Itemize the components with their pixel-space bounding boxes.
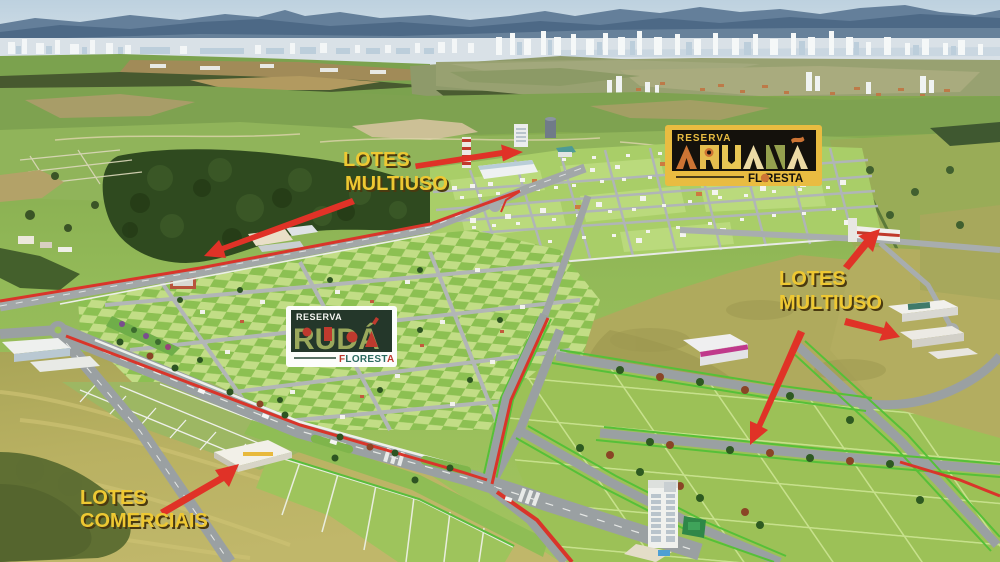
- svg-text:LOTES: LOTES: [343, 149, 410, 171]
- svg-text:MULTIUSO: MULTIUSO: [779, 292, 882, 314]
- svg-text:RESERVA: RESERVA: [677, 133, 731, 144]
- svg-text:LOTES: LOTES: [80, 487, 147, 509]
- svg-text:RUDÁ: RUDÁ: [293, 322, 380, 356]
- svg-text:FLORESTA: FLORESTA: [339, 354, 395, 365]
- svg-text:RESERVA: RESERVA: [296, 312, 342, 322]
- svg-text:FL RESTA: FL RESTA: [748, 173, 803, 185]
- svg-text:LOTES: LOTES: [779, 268, 846, 290]
- svg-text:COMERCIAIS: COMERCIAIS: [80, 510, 208, 532]
- svg-text:MULTIUSO: MULTIUSO: [345, 173, 448, 195]
